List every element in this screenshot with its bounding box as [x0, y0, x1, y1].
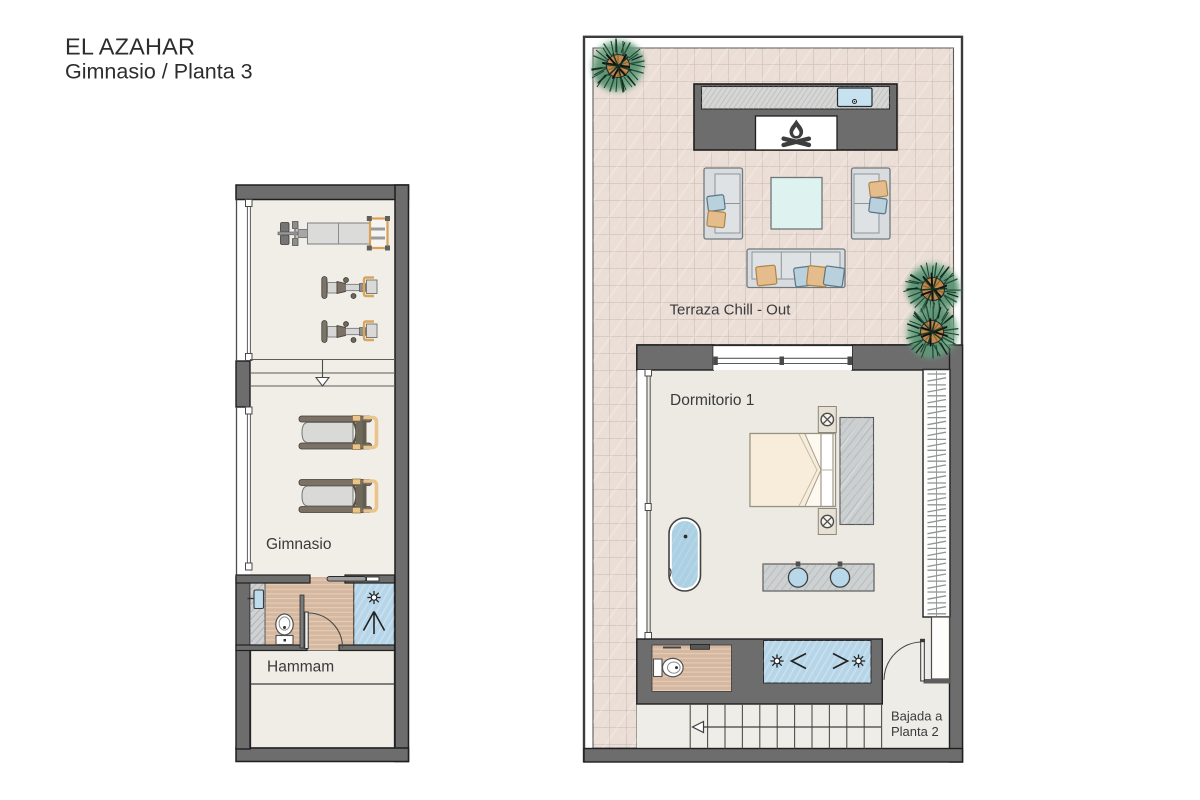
- svg-text:Dormitorio 1: Dormitorio 1: [670, 392, 754, 409]
- svg-text:Planta 2: Planta 2: [891, 724, 939, 739]
- svg-text:EL AZAHAR: EL AZAHAR: [65, 34, 195, 60]
- svg-text:Hammam: Hammam: [267, 659, 334, 676]
- svg-text:Gimnasio / Planta 3: Gimnasio / Planta 3: [65, 60, 253, 84]
- svg-text:Terraza Chill - Out: Terraza Chill - Out: [670, 302, 792, 319]
- svg-text:Gimnasio: Gimnasio: [266, 536, 331, 553]
- svg-text:Bajada a: Bajada a: [891, 709, 943, 724]
